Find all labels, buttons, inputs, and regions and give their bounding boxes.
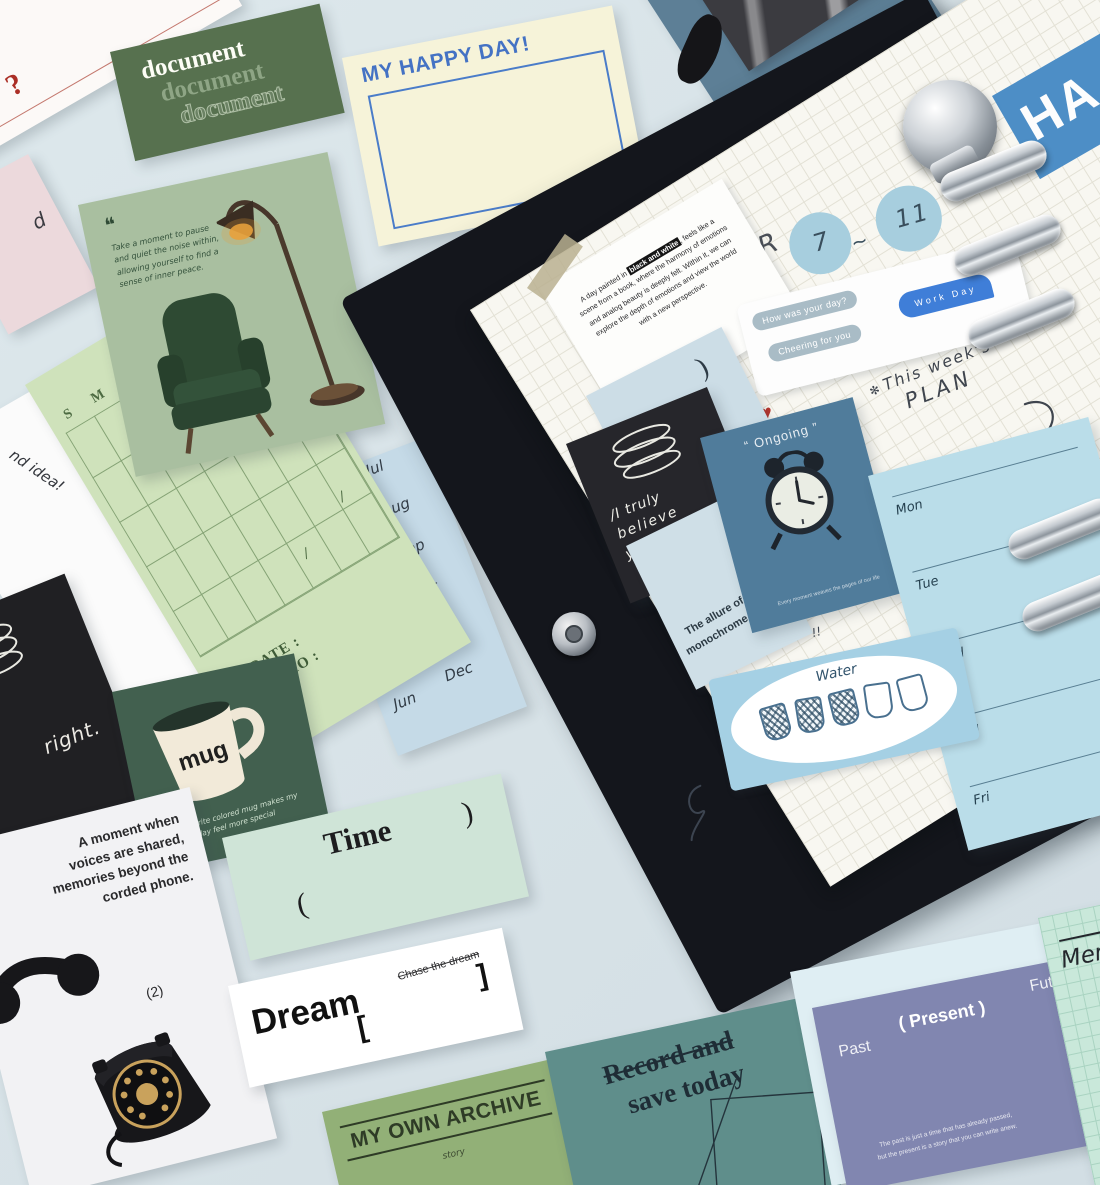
cover-snap-stud [552,612,596,656]
scribble-right-text: right. [40,714,104,758]
weekday-mon: M [88,387,108,408]
dream-bracket-close: ] [474,958,491,993]
spring-doodle-icon [0,608,45,698]
paren-close: ) [691,352,714,385]
water-cup-filled [826,688,861,728]
time-paren-open: ( [293,887,310,922]
day-start-text: 7 [809,227,831,258]
day-end-text: 11 [892,197,933,233]
water-cup-empty [895,673,930,714]
water-cup-empty [862,681,894,719]
record-frame-doodle [613,1063,838,1185]
water-cup-filled [793,696,825,735]
quote-icon: ❝ [102,212,118,239]
weekday-sun: S [61,406,76,424]
idea-card-text: nd idea! [6,446,67,496]
chat-bubble-2: Cheering for you [767,323,863,363]
water-cup-filled [757,702,793,743]
pink-tab-card: d [0,154,98,334]
dream-title: Dream [248,982,363,1044]
alarm-clock-icon [750,444,849,556]
past-label: Past [837,1038,872,1062]
archive-card: MY OWN ARCHIVE story [322,1058,585,1185]
time-title: Time [320,812,395,862]
chair-quote-text: Take a moment to pause and quiet the noi… [111,220,231,292]
chat-bubble-3: Work Day [896,272,995,320]
present-label: ( Present ) [897,997,987,1034]
pink-tab-text: d [28,207,50,234]
dream-strike-text: Chase the dream [396,948,480,983]
stationery-flatlay-photo: nd idea! right. d ? document document do… [0,0,1100,1185]
archive-title: MY OWN ARCHIVE [340,1079,553,1161]
dream-bracket-open: [ [354,1010,371,1045]
time-paren-close: ) [459,795,476,830]
phone-count: (2) [144,982,164,1002]
